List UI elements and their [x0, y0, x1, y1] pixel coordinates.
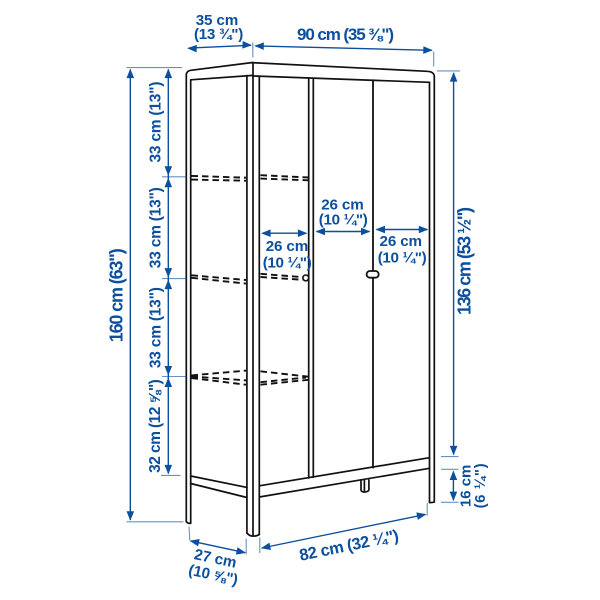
- svg-text:90 cm (35 ⅜"): 90 cm (35 ⅜"): [297, 25, 394, 44]
- svg-text:(10 ¼"): (10 ¼"): [319, 211, 368, 228]
- svg-text:82 cm (32 ¼"): 82 cm (32 ¼"): [298, 527, 401, 565]
- svg-text:26 cm: 26 cm: [380, 233, 423, 250]
- svg-text:(13 ¾"): (13 ¾"): [194, 26, 243, 43]
- svg-text:33 cm (13"): 33 cm (13"): [147, 287, 164, 368]
- svg-text:136 cm (53 ½"): 136 cm (53 ½"): [454, 207, 474, 315]
- svg-text:(6 ¼"): (6 ¼"): [472, 463, 489, 508]
- svg-text:(10 ¼"): (10 ¼"): [263, 255, 312, 272]
- svg-text:(10 ¼"): (10 ¼"): [378, 249, 427, 266]
- svg-text:32 cm (12 ⅝"): 32 cm (12 ⅝"): [147, 379, 164, 473]
- svg-text:33 cm (13"): 33 cm (13"): [147, 187, 164, 268]
- svg-text:33 cm (13"): 33 cm (13"): [147, 82, 164, 163]
- svg-text:160 cm (63"): 160 cm (63"): [107, 248, 127, 342]
- svg-text:26 cm: 26 cm: [266, 238, 309, 255]
